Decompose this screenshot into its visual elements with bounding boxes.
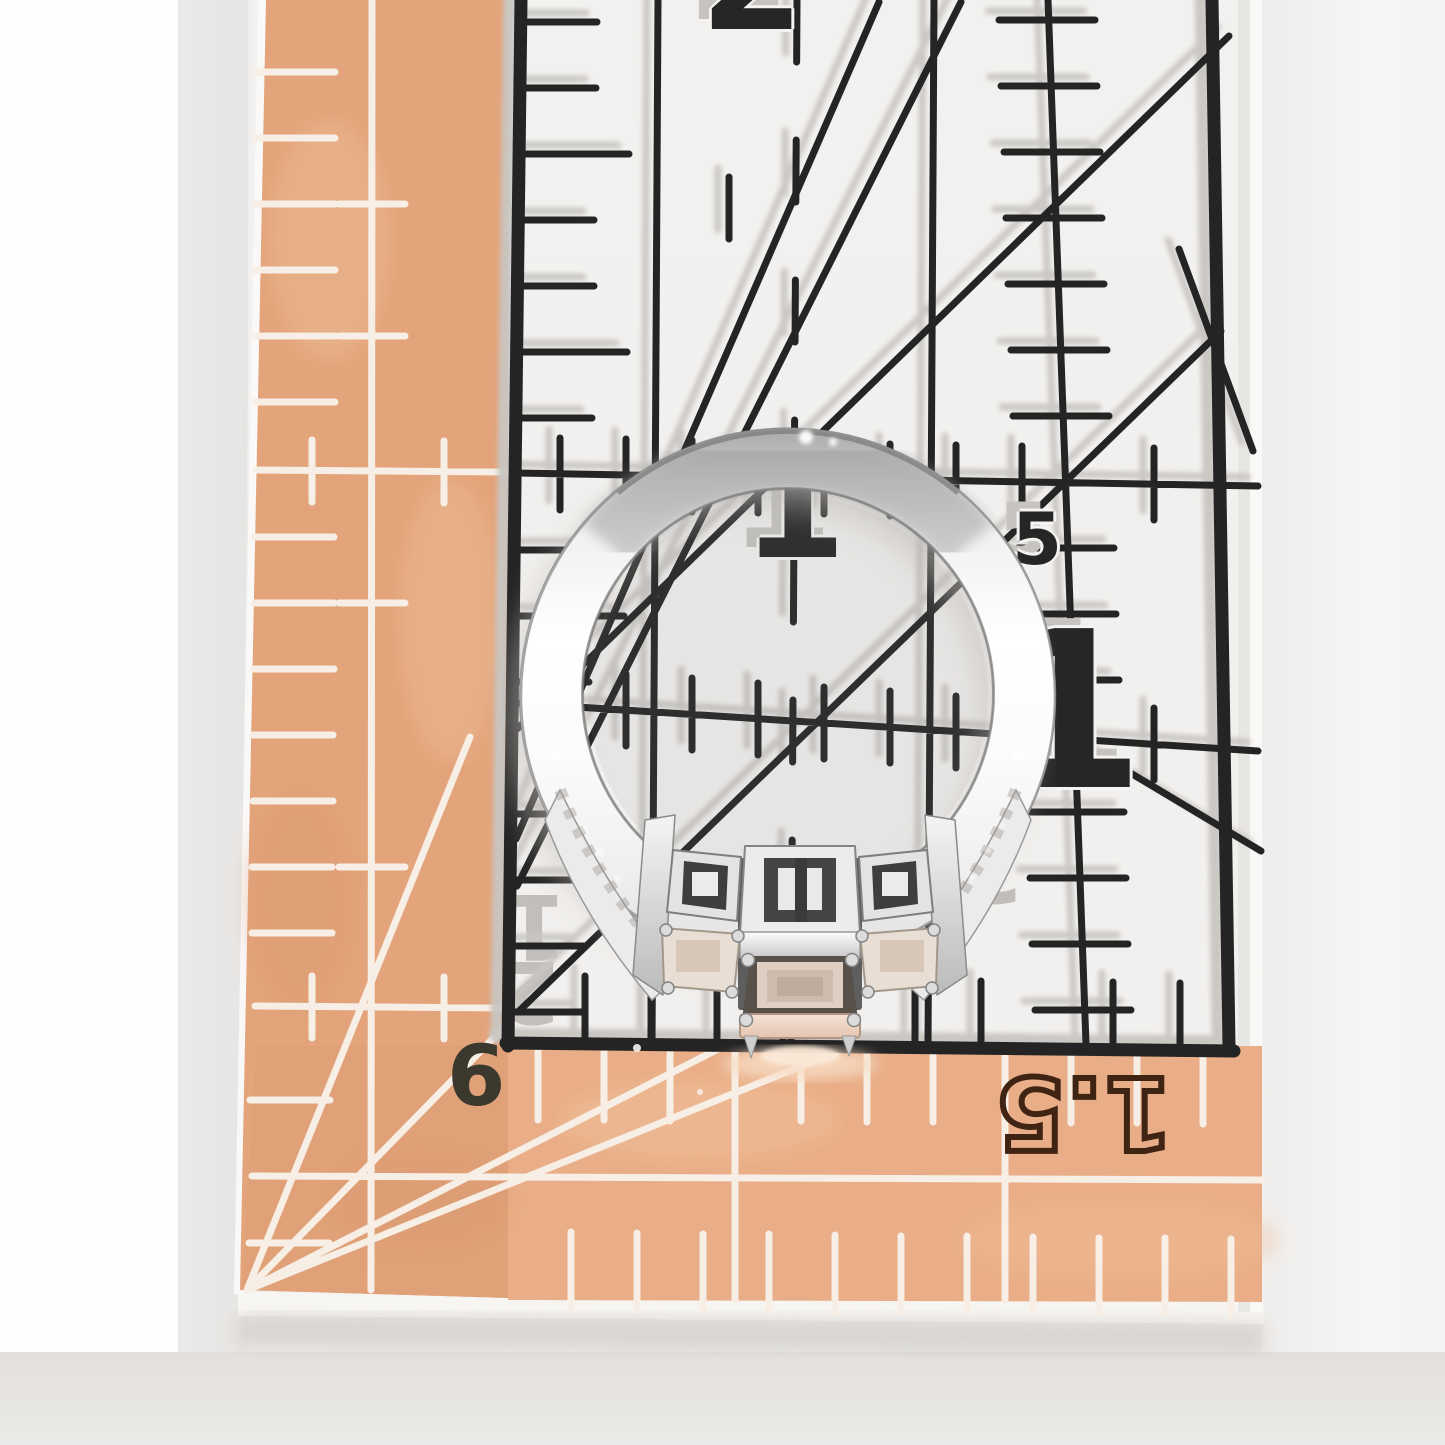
center-crossbar (740, 932, 860, 958)
caustic-glow-bright (760, 1046, 840, 1066)
silver-ring (0, 0, 1445, 1445)
center-stone-girdle (740, 1014, 860, 1038)
product-photo: 1 2 3 2 1 5 1 6 1.5 (0, 0, 1445, 1445)
